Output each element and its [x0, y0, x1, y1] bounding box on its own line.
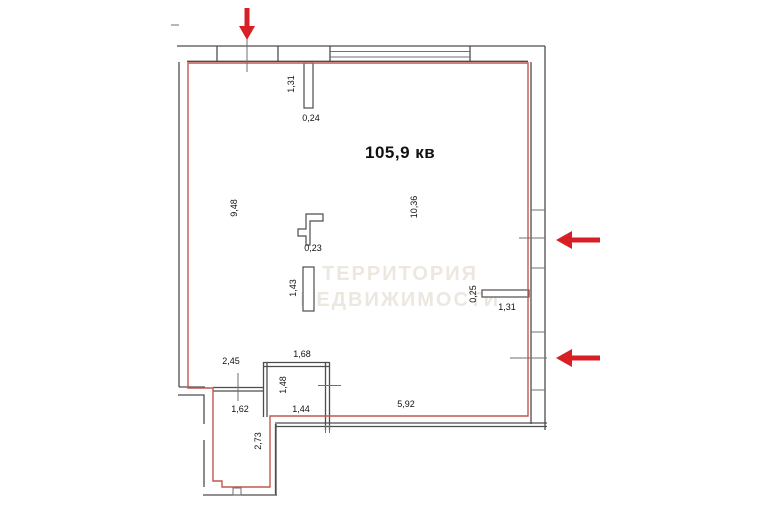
dim-closet-depth: 1,48 — [278, 376, 288, 394]
arrow-left-icon — [556, 231, 600, 249]
top-partition-stub — [304, 63, 313, 108]
annex-door-mark — [233, 488, 241, 495]
dim-partition-length: 1,43 — [288, 279, 298, 297]
arrow-left-icon — [556, 349, 600, 367]
middle-partition — [303, 267, 314, 311]
dim-column-width: 0,23 — [304, 243, 322, 253]
watermark-line1: ТЕРРИТОРИЯ — [322, 263, 478, 285]
left-wall-outer — [179, 62, 205, 387]
dim-right-stub-length: 1,31 — [498, 302, 516, 312]
dim-corridor-width: 2,45 — [222, 356, 240, 366]
dim-right-side-length: 10,36 — [409, 196, 419, 219]
floor-plan: ТЕРРИТОРИЯ НЕДВИЖИМОСТИ — [0, 0, 770, 510]
bottom-wall-double — [275, 423, 547, 427]
dim-hallway-width: 1,62 — [231, 404, 249, 414]
window-glass-lines — [330, 52, 470, 58]
dim-closet-width: 1,68 — [293, 349, 311, 359]
dim-top-stub-width: 0,24 — [302, 113, 320, 123]
area-label: 105,9 кв — [365, 143, 435, 162]
floor-plan-drawing: ТЕРРИТОРИЯ НЕДВИЖИМОСТИ — [0, 0, 770, 510]
closet-top-wall — [263, 363, 330, 367]
right-partition-stub — [482, 290, 529, 297]
dim-hallway-depth: 2,73 — [253, 432, 263, 450]
dim-left-wall-length: 9,48 — [229, 199, 239, 217]
outer-walls — [171, 25, 547, 430]
dim-closet-bottom-width: 1,44 — [292, 404, 310, 414]
dim-right-stub-depth: 0,25 — [468, 285, 478, 303]
column-piece — [298, 214, 323, 245]
dim-top-opening-height: 1,31 — [286, 75, 296, 93]
closet-left-wall — [264, 362, 268, 417]
dim-bottom-wall-length: 5,92 — [397, 399, 415, 409]
right-wall-ticks — [531, 210, 545, 390]
annex-step — [178, 395, 204, 424]
window-frame — [330, 46, 470, 62]
arrow-down-icon — [239, 8, 255, 40]
closet-right-wall — [326, 362, 330, 430]
window — [330, 46, 470, 62]
